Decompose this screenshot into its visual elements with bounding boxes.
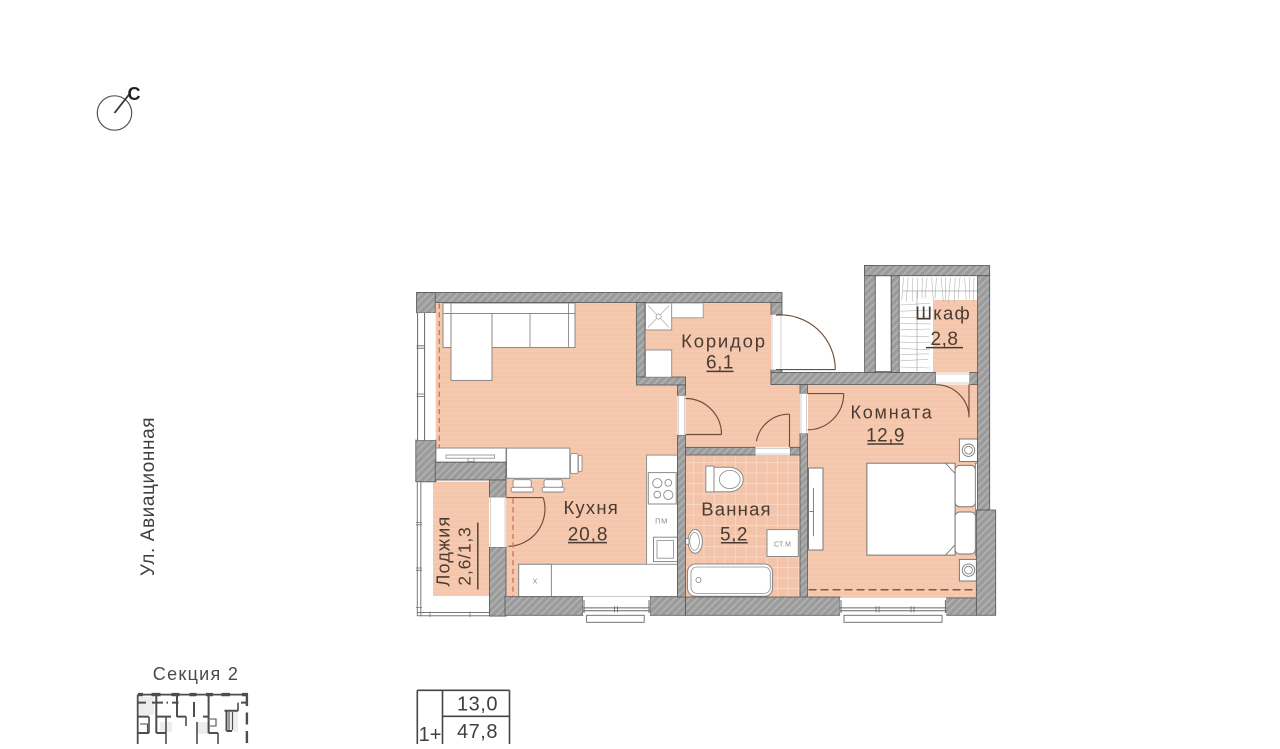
svg-text:47,8: 47,8 [457, 721, 498, 743]
svg-text:6,1: 6,1 [706, 352, 734, 373]
svg-text:ПМ: ПМ [655, 517, 668, 526]
svg-text:13,0: 13,0 [457, 694, 498, 716]
svg-text:СТ.М: СТ.М [774, 541, 791, 548]
svg-text:х: х [533, 576, 538, 587]
svg-text:2,6/1,3: 2,6/1,3 [455, 526, 475, 585]
svg-text:С: С [128, 84, 141, 104]
svg-text:Секция 2: Секция 2 [153, 664, 239, 684]
svg-text:1+: 1+ [419, 724, 442, 744]
svg-text:Ванная: Ванная [701, 498, 772, 519]
svg-text:Кухня: Кухня [563, 497, 619, 518]
svg-text:Ул. Авиационная: Ул. Авиационная [138, 417, 159, 576]
svg-text:Комната: Комната [850, 403, 933, 423]
svg-text:Шкаф: Шкаф [915, 303, 971, 324]
svg-text:Лоджия: Лоджия [434, 516, 454, 587]
svg-text:Коридор: Коридор [681, 331, 767, 352]
